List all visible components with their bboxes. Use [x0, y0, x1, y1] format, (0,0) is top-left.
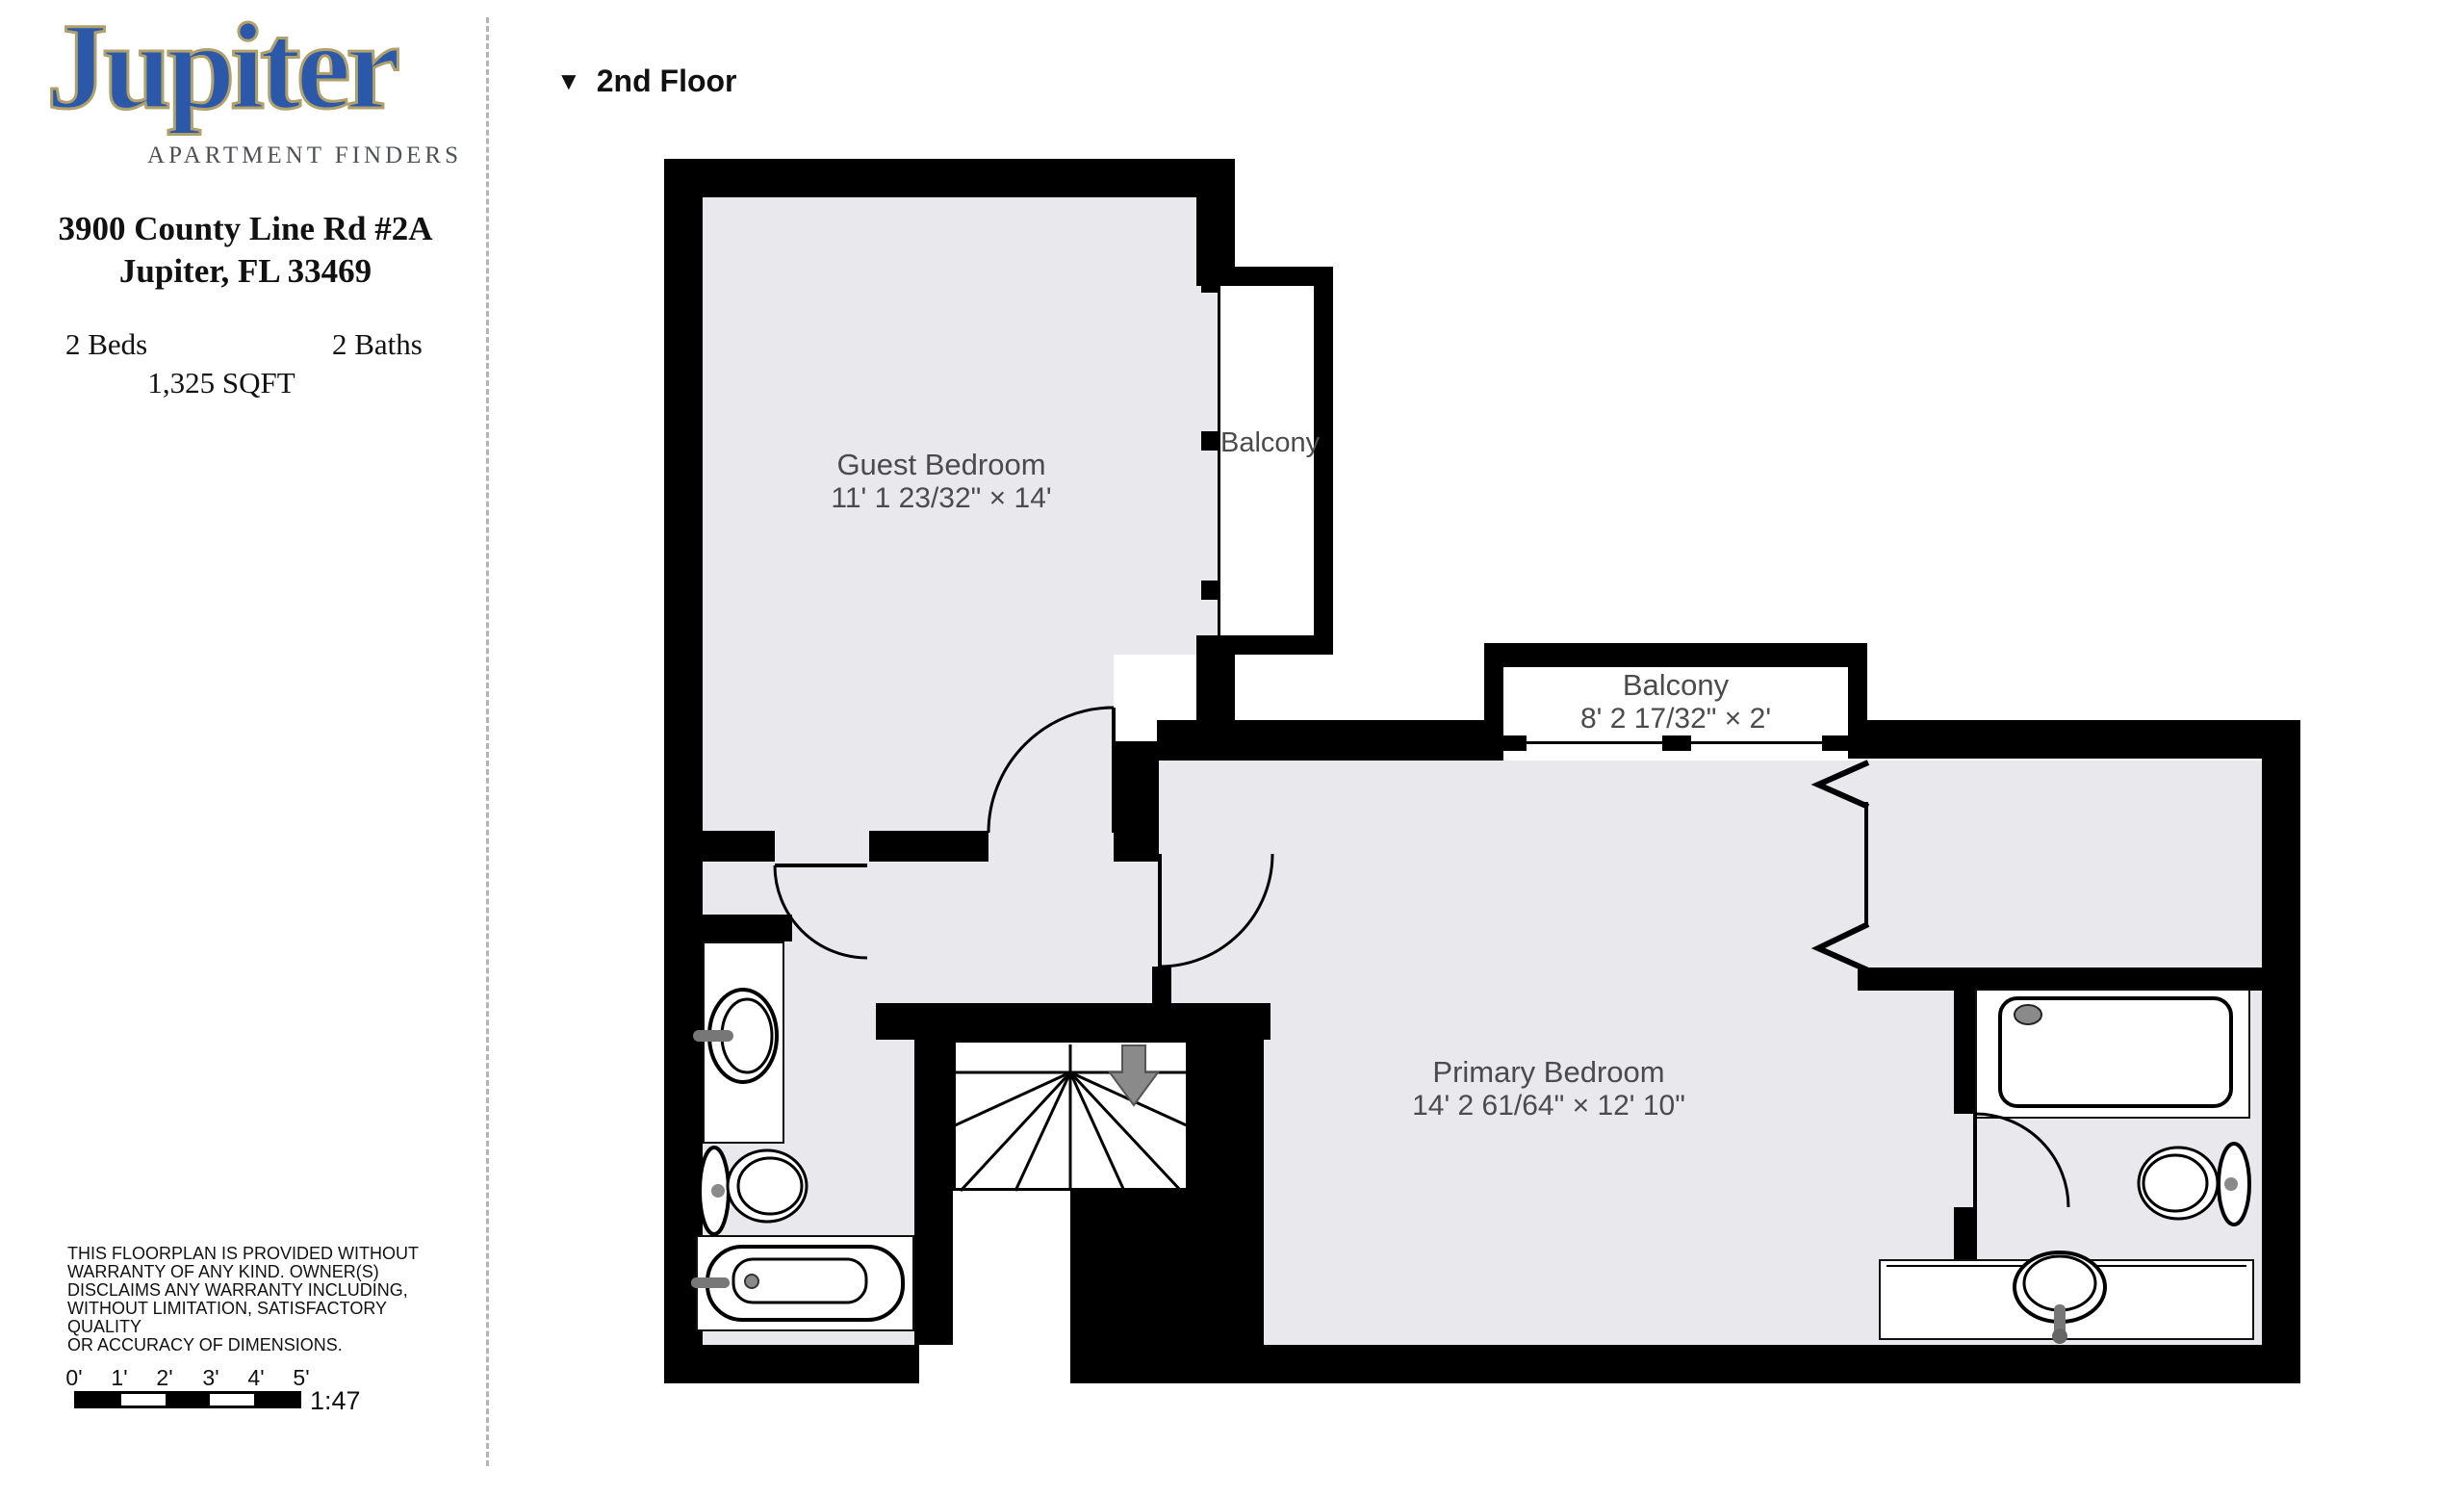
room-label-guest-bedroom: Guest Bedroom 11' 1 23/32" × 14'	[701, 448, 1182, 516]
room-label-side-balcony: Balcony	[1220, 427, 1320, 460]
room-name: Guest Bedroom	[701, 448, 1182, 482]
panel-divider	[486, 17, 489, 1466]
scale-ratio: 1:47	[310, 1386, 361, 1416]
wall	[1848, 720, 2271, 759]
brand-tagline: APARTMENT FINDERS	[144, 142, 462, 169]
staircase	[953, 1040, 1189, 1191]
vanity-counter	[1879, 1259, 2254, 1340]
address-line-1: 3900 County Line Rd #2A	[53, 210, 438, 248]
doorway-floor	[988, 831, 1114, 862]
triangle-down-icon[interactable]: ▼	[556, 66, 581, 96]
window-tick	[1822, 735, 1851, 751]
wall	[1152, 967, 1171, 1005]
disclaimer-line: OR ACCURACY OF DIMENSIONS.	[67, 1336, 452, 1354]
doorway-floor	[775, 831, 869, 862]
wall	[1954, 1207, 1977, 1261]
wall	[1314, 267, 1333, 655]
guest-bedroom-floor	[701, 195, 1196, 655]
room-dimensions: 8' 2 17/32" × 2'	[1503, 703, 1848, 736]
wall	[1196, 655, 1235, 722]
bathtub-enclosure	[696, 1235, 914, 1331]
scale-tick: 0'	[65, 1365, 82, 1391]
stair-run	[953, 1191, 1070, 1345]
room-dimensions: 11' 1 23/32" × 14'	[701, 482, 1182, 516]
disclaimer-line: DISCLAIMS ANY WARRANTY INCLUDING,	[67, 1281, 452, 1300]
scale-segment	[210, 1394, 254, 1406]
wall	[1114, 741, 1159, 862]
area-sqft: 1,325 SQFT	[58, 366, 385, 400]
disclaimer-line: WARRANTY OF ANY KIND. OWNER(S)	[67, 1263, 452, 1281]
address-line-2: Jupiter, FL 33469	[53, 252, 438, 291]
wall	[701, 915, 792, 941]
disclaimer-line: THIS FLOORPLAN IS PROVIDED WITHOUT	[67, 1245, 452, 1263]
scale-tick: 3'	[202, 1365, 218, 1391]
window-tick	[1201, 273, 1219, 293]
vanity-counter	[703, 941, 784, 1144]
window-tick	[1662, 735, 1691, 751]
scale-segment	[121, 1394, 166, 1406]
scale-bar	[74, 1391, 301, 1408]
wall	[664, 159, 1235, 197]
brand-logo: Jupiter	[46, 2, 396, 131]
closet-door-line	[1864, 802, 1868, 927]
room-name: Balcony	[1503, 668, 1848, 703]
wall	[1484, 643, 1867, 667]
scale-tick: 5'	[293, 1365, 309, 1391]
wall	[914, 1003, 953, 1345]
window-tick	[1201, 580, 1219, 600]
shower-tub-enclosure	[1975, 989, 2250, 1119]
window-tick	[1498, 735, 1527, 751]
scale-segment	[166, 1394, 210, 1406]
scale-tick: 4'	[247, 1365, 264, 1391]
side-balcony-floor	[1219, 286, 1314, 635]
stair-opening	[919, 1345, 1070, 1383]
scale-segment	[77, 1394, 121, 1406]
wall	[2262, 720, 2300, 1383]
disclaimer-line: WITHOUT LIMITATION, SATISFACTORY QUALITY	[67, 1300, 452, 1336]
floor-selector[interactable]: ▼ 2nd Floor	[556, 64, 737, 99]
floor-label: 2nd Floor	[597, 64, 737, 99]
wall	[1264, 1345, 2300, 1383]
wall	[1157, 720, 1503, 761]
room-label-primary-bedroom: Primary Bedroom 14' 2 61/64" × 12' 10"	[1375, 1055, 1722, 1123]
wall	[1954, 967, 1977, 1114]
counter-edge-line	[1886, 1265, 2246, 1267]
wall	[869, 831, 988, 862]
baths-count: 2 Baths	[332, 327, 423, 362]
room-label-center-balcony: Balcony 8' 2 17/32" × 2'	[1503, 668, 1848, 736]
room-dimensions: 14' 2 61/64" × 12' 10"	[1375, 1090, 1722, 1123]
wall	[1858, 967, 2262, 991]
scale-segment	[254, 1394, 298, 1406]
scale-tick: 1'	[111, 1365, 127, 1391]
wall	[664, 159, 703, 1383]
scale-tick: 2'	[156, 1365, 172, 1391]
wall	[664, 1345, 919, 1383]
room-name: Balcony	[1220, 427, 1320, 458]
wall	[1196, 635, 1333, 655]
wall	[664, 831, 775, 862]
wall	[1070, 1191, 1264, 1383]
room-name: Primary Bedroom	[1375, 1055, 1722, 1090]
window-tick	[1201, 431, 1219, 451]
beds-count: 2 Beds	[65, 327, 147, 362]
disclaimer-text: THIS FLOORPLAN IS PROVIDED WITHOUT WARRA…	[67, 1245, 452, 1354]
wall	[1189, 1003, 1264, 1191]
guest-bedroom-floor	[701, 655, 1114, 833]
